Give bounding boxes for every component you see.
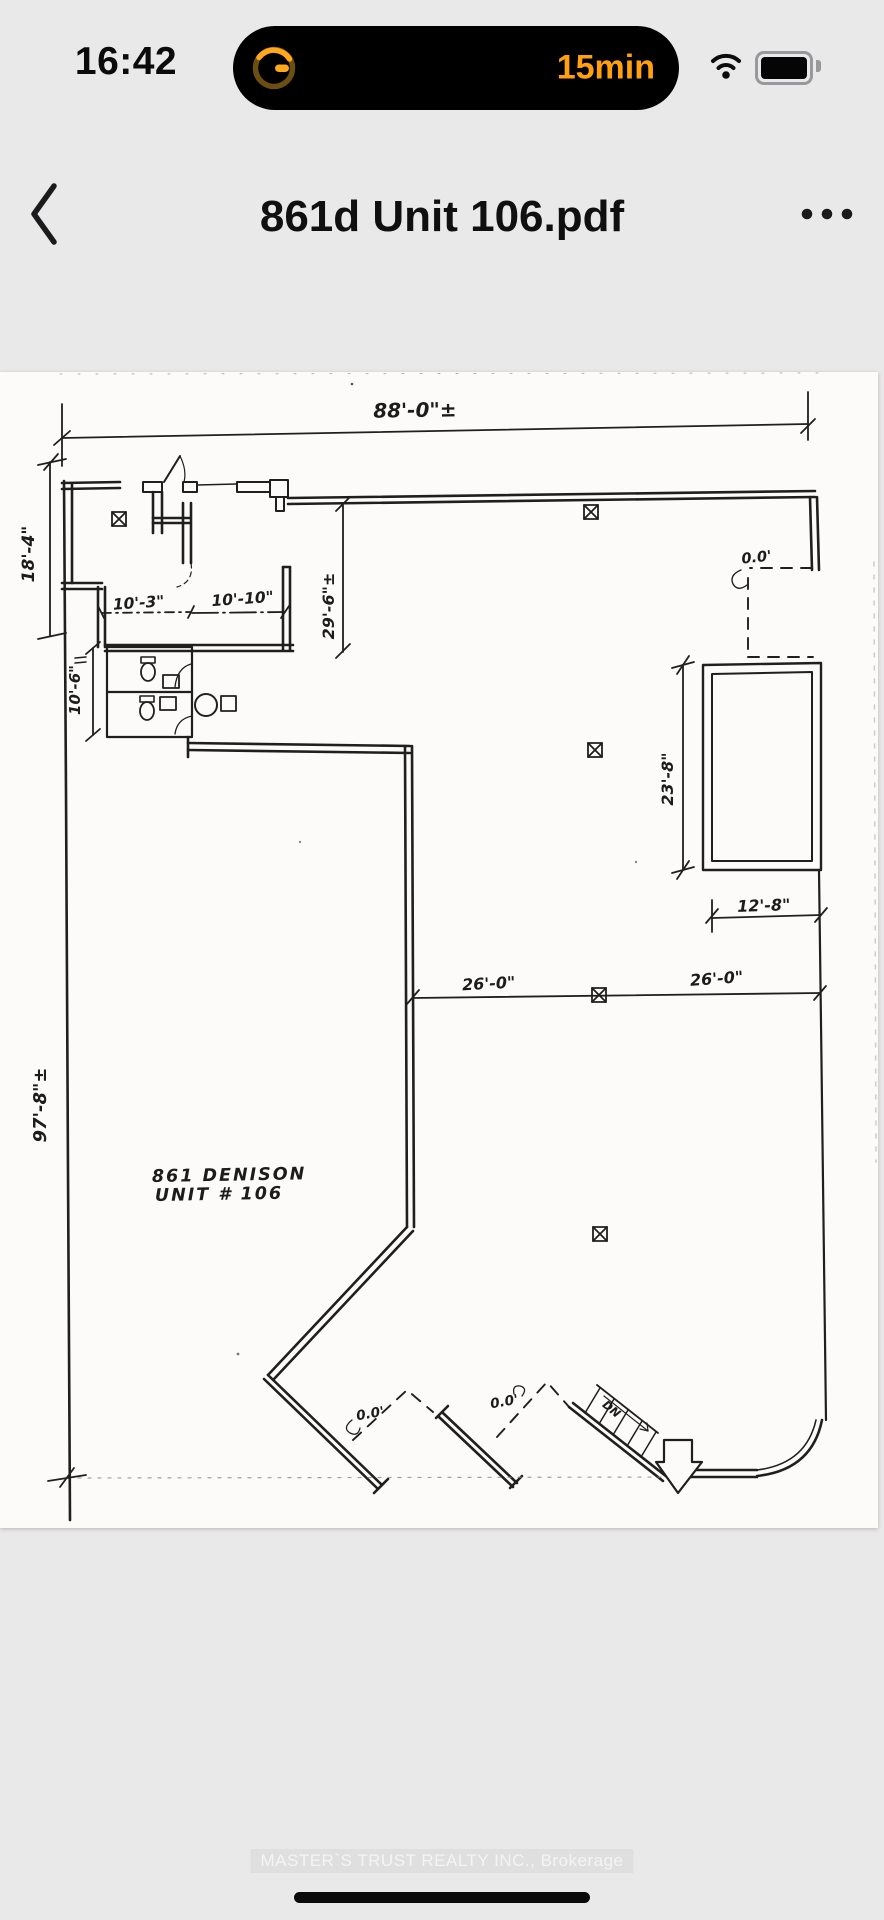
elevation-bottom-left: 0.0': [355, 1404, 385, 1425]
walls: [62, 480, 826, 1520]
details: [75, 456, 876, 1478]
toilet-icon: [141, 657, 155, 681]
home-indicator[interactable]: [294, 1892, 590, 1903]
dim-right-room-width: 12'-8": [737, 895, 791, 916]
address-line1: 861 DENISON: [152, 1164, 307, 1187]
dim-upper-left-height: 18'-4": [19, 526, 39, 583]
dim-washroom: 10'-6": [66, 665, 84, 715]
timer-remaining-label: 15min: [557, 49, 655, 88]
iphone-screen: 16:42 15min 861d Unit 106.pdf: [0, 0, 884, 1920]
dim-span-left: 26'-0": [462, 973, 516, 995]
dashed-openings: [353, 568, 813, 1440]
timer-ring-icon: [249, 43, 299, 93]
battery-icon: [755, 51, 813, 85]
exit-arrow-icon: [656, 1440, 702, 1493]
battery-nub: [816, 60, 821, 72]
sink-icon: [160, 697, 176, 710]
dim-room-a: 10'-3": [112, 592, 165, 614]
scan-edge-noise: [60, 373, 820, 374]
column-markers: [112, 505, 607, 1241]
dim-overall-height: 97'-8"±: [30, 1067, 51, 1142]
fountain-icon: [195, 694, 217, 716]
toilet-icon: [140, 696, 154, 720]
dim-span-right: 26'-0": [689, 967, 743, 990]
more-options-button[interactable]: [799, 207, 855, 221]
dimension-lines: [38, 392, 827, 1487]
address-line2: UNIT # 106: [155, 1184, 284, 1206]
scribble: [732, 570, 747, 588]
dim-room-b: 10'-10": [211, 588, 275, 610]
timer-live-activity-pill[interactable]: 15min: [233, 26, 679, 110]
status-time: 16:42: [70, 40, 182, 84]
document-title: 861d Unit 106.pdf: [0, 192, 884, 242]
elevation-top-right: 0.0': [741, 548, 773, 567]
pdf-page[interactable]: 88'-0"± 18'-4" 97'-8"± 29'-6"± 10'-3" 10…: [0, 372, 878, 1528]
floor-plan-drawing: 88'-0"± 18'-4" 97'-8"± 29'-6"± 10'-3" 10…: [0, 372, 878, 1528]
wifi-icon: [705, 48, 747, 80]
dim-right-room-height: 23'-8": [658, 752, 677, 805]
brokerage-watermark: MASTER`S TRUST REALTY INC., Brokerage: [251, 1849, 634, 1873]
elevation-bottom-mid: 0.0': [489, 1392, 519, 1413]
sink-icon: [221, 696, 236, 711]
dim-overall-width: 88'-0"±: [373, 397, 457, 422]
dim-corridor-depth: 29'-6"±: [319, 573, 338, 640]
